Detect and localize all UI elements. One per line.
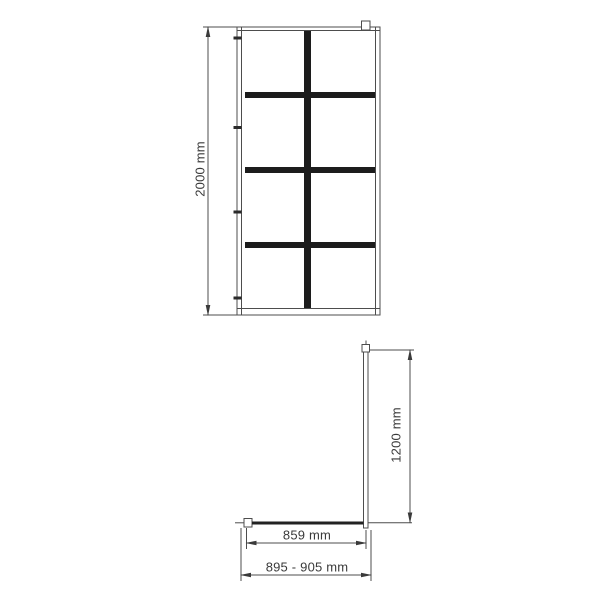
grid-horizontal-bar-3 [245, 242, 375, 248]
wall-fixing-tick-4 [234, 297, 242, 300]
wall-fixing-tick-2 [234, 126, 242, 129]
glass-width-arrow-left [246, 541, 257, 546]
support-post-cap [362, 345, 370, 353]
height-dim-arrow-up [206, 26, 211, 37]
plan-total-width-dimension-label: 895 - 905 mm [266, 560, 349, 575]
height-dim-arrow-down [206, 305, 211, 316]
total-width-arrow-left [240, 573, 251, 578]
depth-dim-arrow-up [408, 349, 413, 360]
wall-fixing-tick-3 [234, 211, 242, 214]
front-height-dimension-label: 2000 mm [193, 141, 208, 197]
glass-width-arrow-right [356, 541, 367, 546]
plan-glass-width-dimension-label: 859 mm [283, 528, 331, 543]
front-view [203, 21, 380, 316]
glass-panel-edge [252, 521, 364, 524]
grid-horizontal-bar-2 [245, 167, 375, 173]
wall-profile-section [244, 519, 252, 528]
technical-drawing-canvas: 2000 mm 1200 mm 859 mm 895 - 905 mm [0, 0, 600, 600]
total-width-arrow-right [361, 573, 372, 578]
support-bracket [362, 21, 371, 30]
depth-dim-arrow-down [408, 513, 413, 524]
support-post [364, 352, 369, 528]
grid-horizontal-bar-1 [245, 92, 375, 98]
drawing-svg [0, 0, 600, 600]
plan-view [235, 341, 414, 582]
plan-depth-dimension-label: 1200 mm [389, 407, 404, 463]
wall-fixing-tick-1 [234, 37, 242, 40]
